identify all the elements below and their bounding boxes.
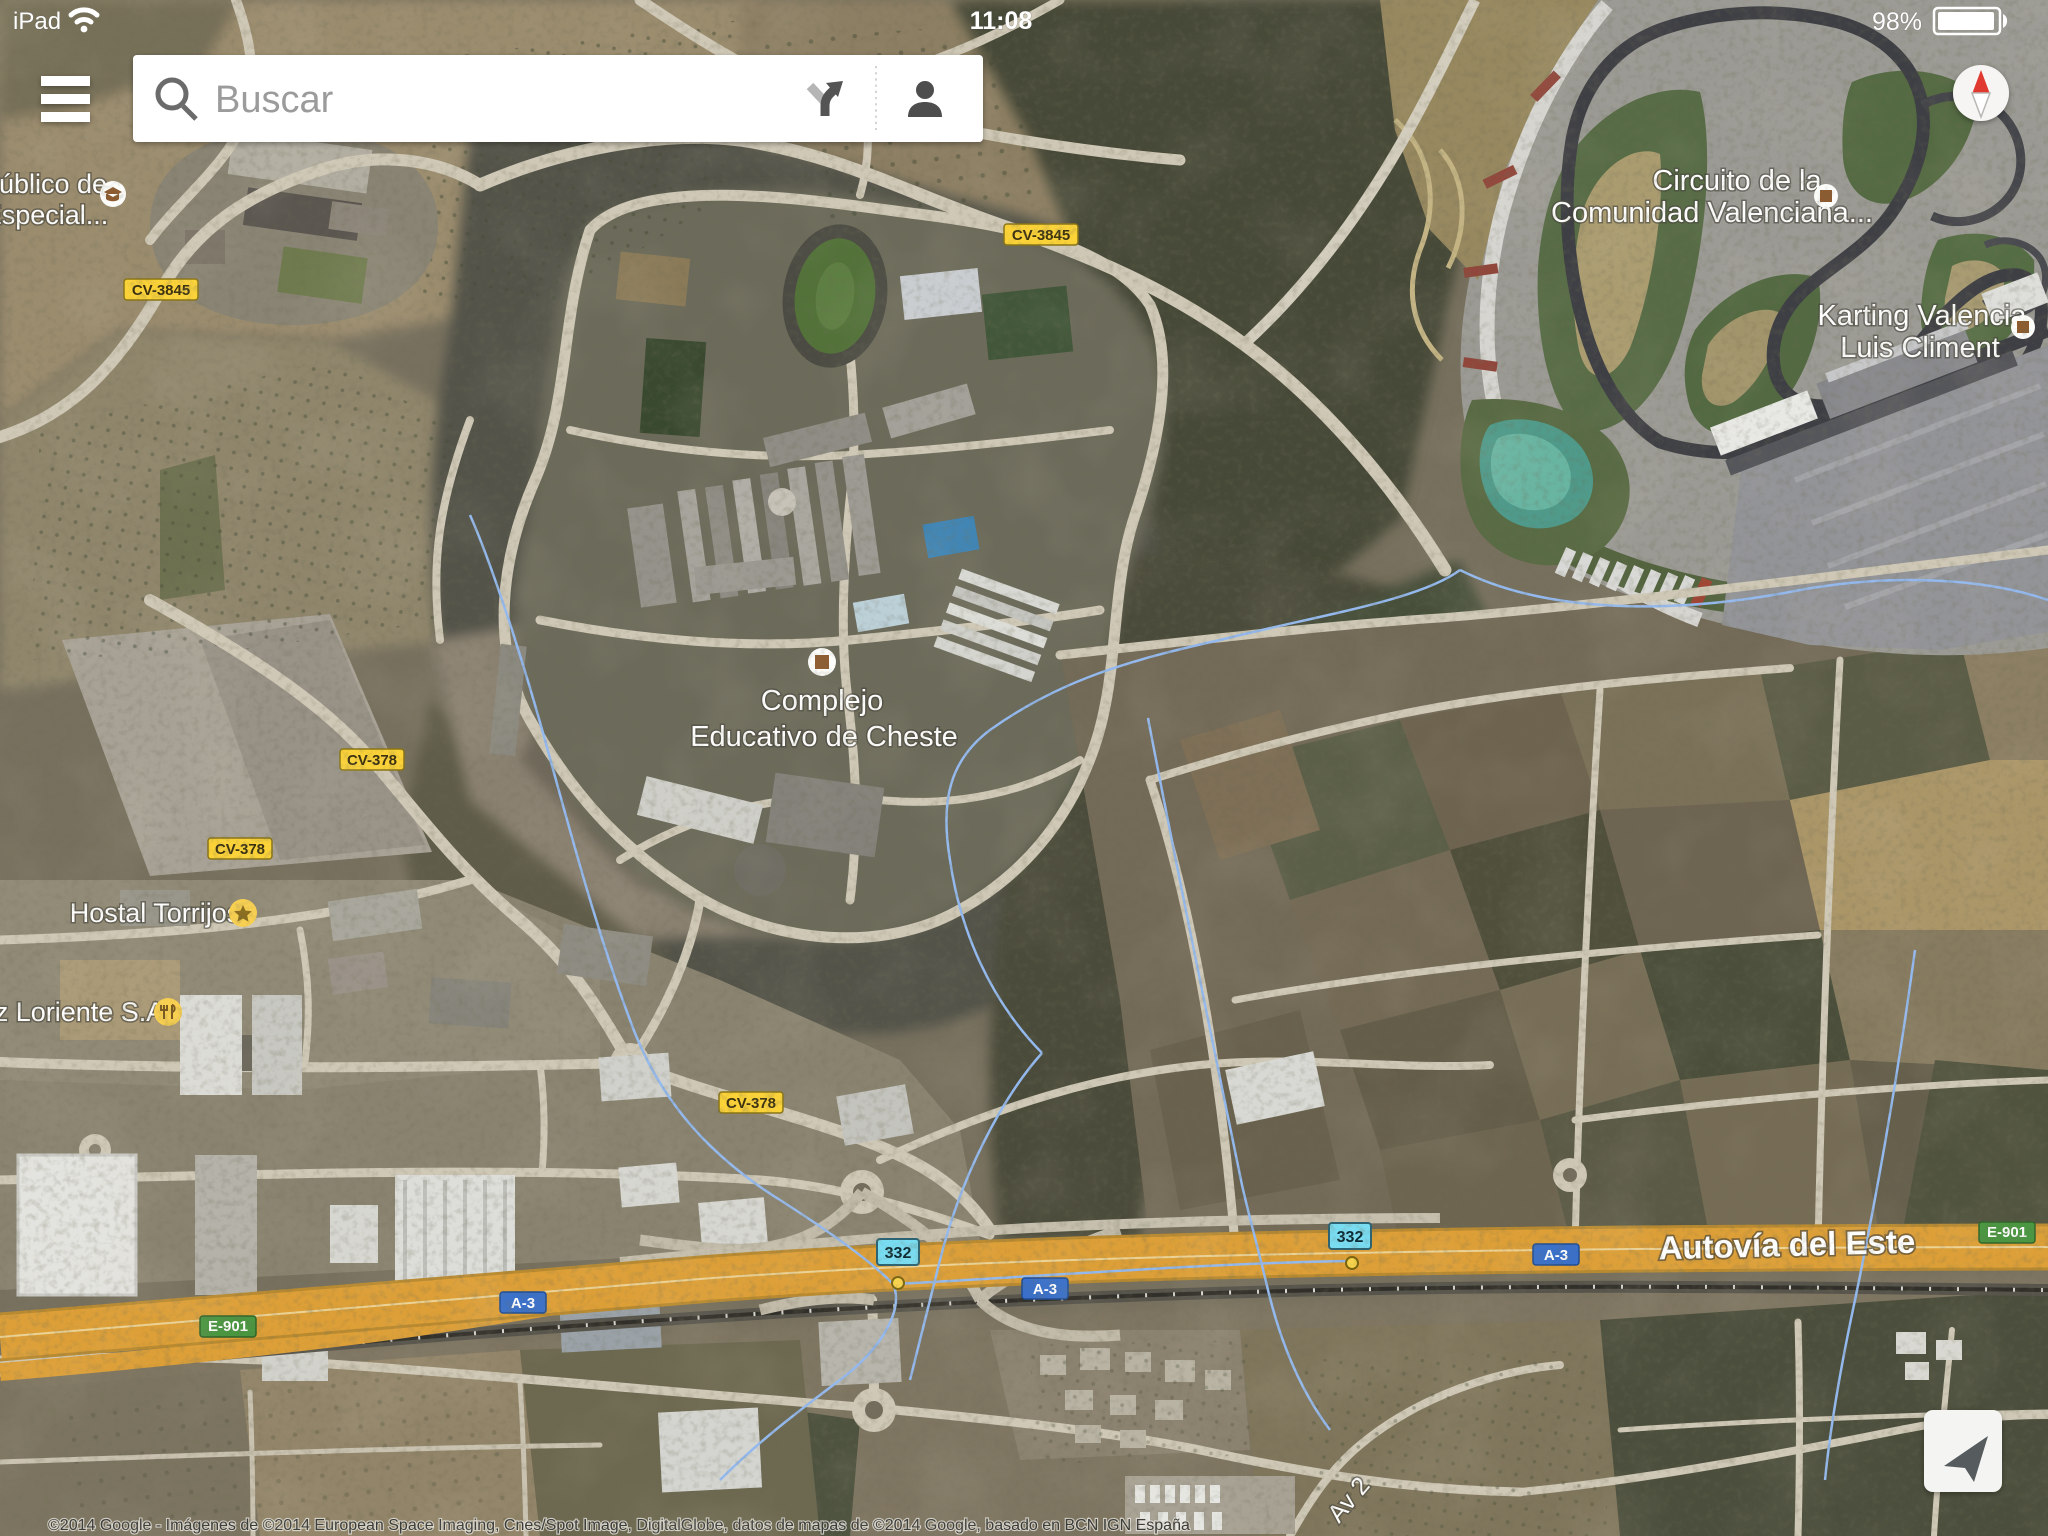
svg-text:iPad: iPad xyxy=(13,8,61,35)
svg-text:Buscar: Buscar xyxy=(215,79,334,121)
svg-text:98%: 98% xyxy=(1872,8,1922,36)
svg-text:11:08: 11:08 xyxy=(970,7,1033,35)
